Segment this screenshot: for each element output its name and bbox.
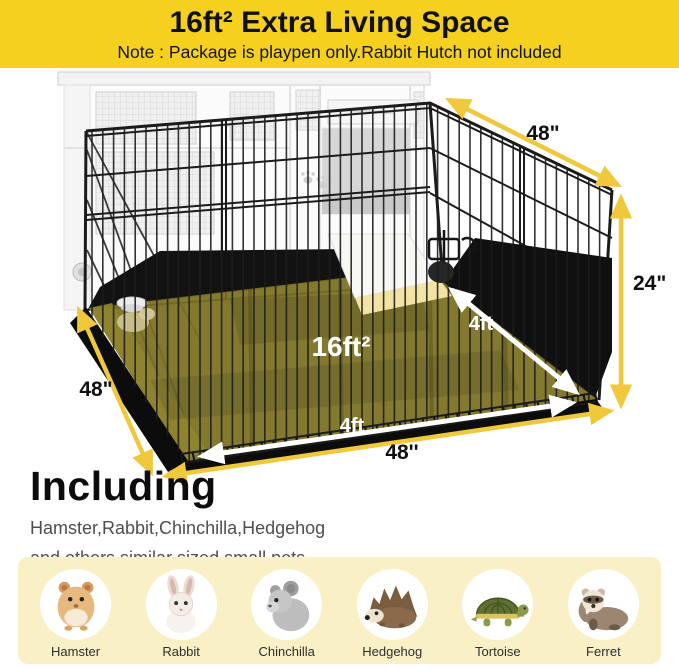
chinchilla-image [251, 569, 322, 640]
hamster-image [40, 569, 111, 640]
including-heading: Including [30, 466, 325, 507]
ferret-image [568, 569, 639, 640]
dimension-label-bottom: 48'' [385, 441, 418, 464]
animal-item-chinchilla: Chinchilla [239, 569, 335, 659]
dimension-label-top-right: 48" [526, 122, 559, 145]
dimension-label-left: 48" [79, 378, 112, 401]
animal-label: Ferret [586, 644, 621, 659]
suitable-pets-panel: Hamster Rabbit [18, 557, 661, 664]
animal-label: Chinchilla [259, 644, 315, 659]
animal-item-tortoise: Tortoise [450, 569, 546, 659]
animal-item-rabbit: Rabbit [133, 569, 229, 659]
animal-label: Tortoise [475, 644, 521, 659]
including-line1: Hamster,Rabbit,Chinchilla,Hedgehog [30, 517, 325, 540]
rabbit-image [146, 569, 217, 640]
animal-label: Rabbit [162, 644, 200, 659]
banner-note: Note : Package is playpen only.Rabbit Hu… [0, 44, 679, 62]
tortoise-image [462, 569, 533, 640]
dimension-label-right: 24" [633, 272, 666, 295]
animal-label: Hedgehog [362, 644, 422, 659]
including-section: Including Hamster,Rabbit,Chinchilla,Hedg… [30, 466, 325, 569]
animal-label: Hamster [51, 644, 100, 659]
animal-item-hamster: Hamster [28, 569, 124, 659]
product-infographic: 16ft² Extra Living Space Note : Package … [0, 0, 679, 670]
animal-item-ferret: Ferret [555, 569, 651, 659]
floor-label-front: 4ft [340, 415, 365, 437]
banner: 16ft² Extra Living Space Note : Package … [0, 0, 679, 68]
animal-item-hedgehog: Hedgehog [344, 569, 440, 659]
banner-title: 16ft² Extra Living Space [0, 0, 679, 38]
area-label: 16ft² [311, 331, 370, 362]
hedgehog-image [357, 569, 428, 640]
floor-label-right: 4ft [469, 313, 494, 335]
